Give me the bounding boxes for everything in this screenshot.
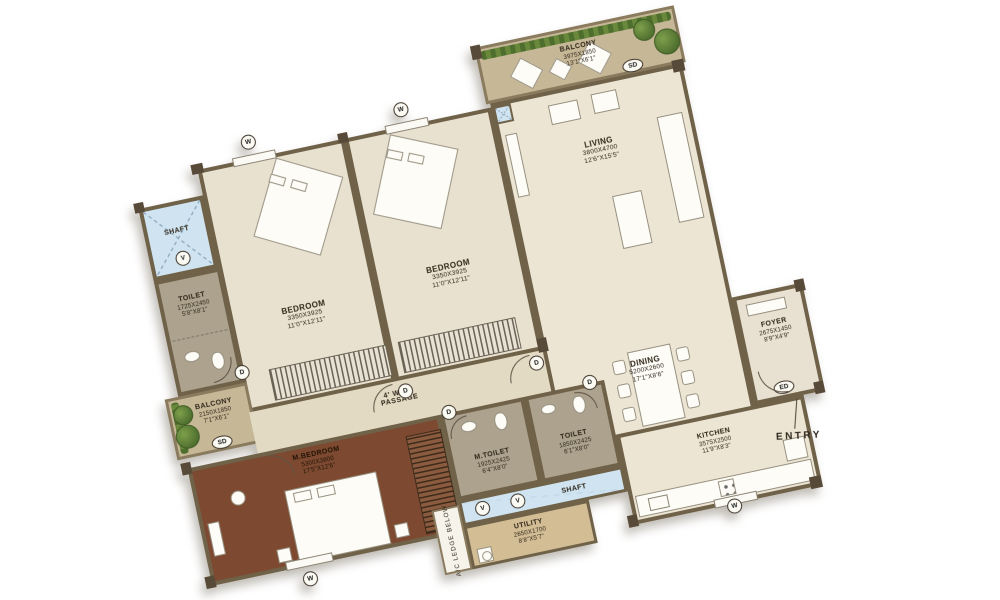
common-toilet-label: TOILET 1850X2425 6'1"X8'0" — [537, 424, 614, 462]
coffee-table — [612, 190, 653, 249]
ottoman — [229, 489, 247, 507]
floor-plan-canvas: BALCONY 3975X1850 13'1"X6'1" SD LIVING 3… — [0, 0, 1000, 600]
column — [627, 514, 639, 528]
sliding-door-marker: SD — [211, 434, 234, 451]
window-marker: W — [392, 101, 410, 119]
dining-chair — [621, 406, 637, 422]
bed — [284, 471, 391, 563]
shower-divider — [173, 329, 228, 342]
dining-chair — [685, 393, 701, 409]
column — [337, 132, 349, 144]
shoe-cabinet — [746, 297, 788, 317]
column — [671, 58, 685, 72]
floor-plan: BALCONY 3975X1850 13'1"X6'1" SD LIVING 3… — [95, 0, 886, 600]
column — [204, 575, 216, 589]
window-marker: W — [302, 570, 320, 588]
side-table — [394, 522, 411, 539]
column — [180, 462, 192, 476]
column — [809, 475, 823, 489]
balcony-left-label: BALCONY 2150X1850 7'1"X6'1" — [180, 394, 251, 430]
column — [133, 202, 145, 214]
cross-icon — [495, 106, 512, 123]
column — [794, 278, 806, 292]
wc — [493, 411, 509, 431]
bed — [253, 158, 343, 256]
master-toilet-label: M.TOILET 1925X2425 6'4"X8'0" — [453, 443, 534, 481]
window-marker: W — [239, 133, 257, 151]
armchair — [548, 99, 582, 125]
column — [813, 380, 825, 394]
duct — [493, 103, 514, 124]
entry-label: ENTRY — [776, 429, 823, 442]
washbasin — [540, 403, 557, 416]
bedroom-mid-label: BEDROOM 3350X3925 11'0"X12'11" — [378, 247, 522, 301]
dresser — [207, 521, 226, 557]
toilet-top-label: TOILET 1725X2450 5'8"X8'1" — [162, 288, 225, 323]
bedroom-left-label: BEDROOM 3350X3925 11'0"X12'11" — [233, 288, 377, 342]
bed — [373, 134, 459, 229]
armchair — [590, 89, 620, 114]
foyer-label: FOYER 2675X1450 8'9"X4'9" — [742, 313, 809, 348]
washbasin — [183, 349, 201, 363]
